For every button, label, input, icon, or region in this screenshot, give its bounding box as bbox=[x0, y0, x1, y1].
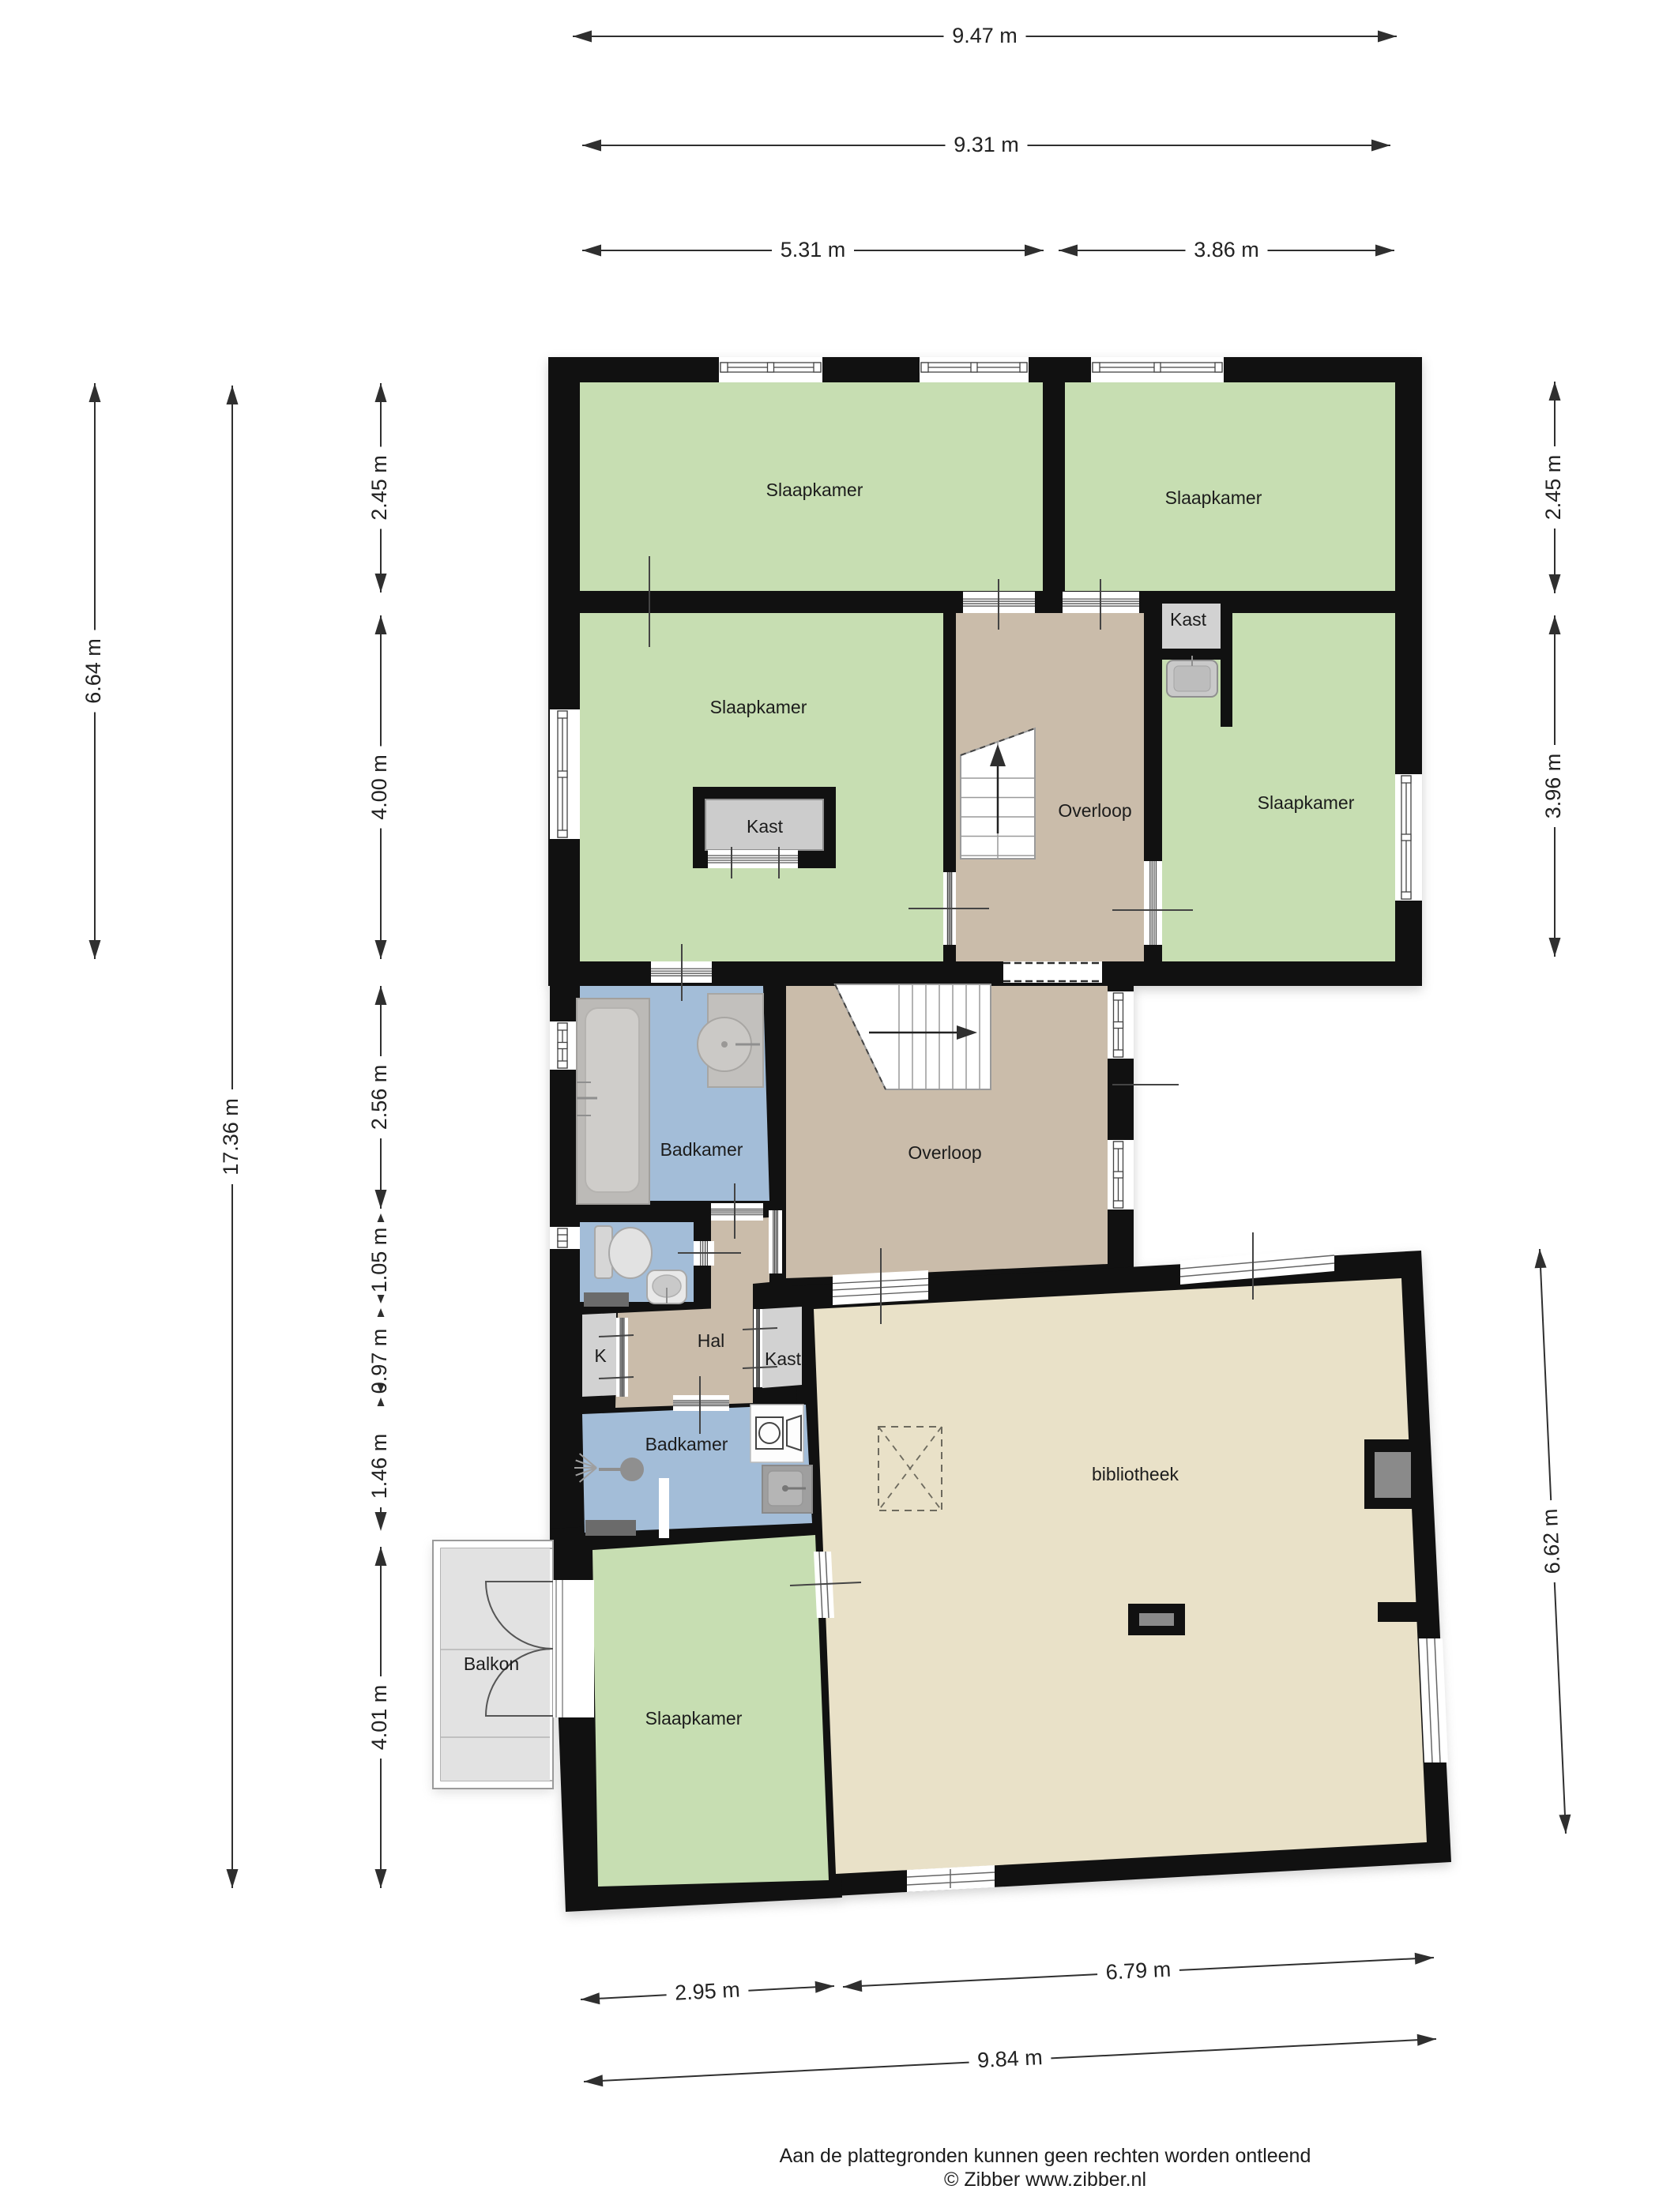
svg-text:Overloop: Overloop bbox=[1058, 800, 1131, 821]
svg-text:9.31 m: 9.31 m bbox=[954, 133, 1019, 156]
svg-text:Badkamer: Badkamer bbox=[645, 1434, 728, 1454]
svg-text:Slaapkamer: Slaapkamer bbox=[766, 480, 863, 500]
svg-text:3.86 m: 3.86 m bbox=[1194, 238, 1259, 261]
svg-text:Hal: Hal bbox=[698, 1330, 725, 1351]
svg-text:Balkon: Balkon bbox=[464, 1653, 519, 1674]
svg-text:4.00 m: 4.00 m bbox=[367, 754, 391, 820]
svg-text:6.62 m: 6.62 m bbox=[1538, 1508, 1565, 1574]
svg-text:Kast: Kast bbox=[1170, 609, 1207, 630]
svg-text:K: K bbox=[594, 1345, 607, 1366]
svg-text:6.64 m: 6.64 m bbox=[81, 638, 105, 704]
svg-text:17.36 m: 17.36 m bbox=[219, 1098, 243, 1176]
svg-text:Slaapkamer: Slaapkamer bbox=[1165, 487, 1262, 508]
svg-text:Kast: Kast bbox=[747, 816, 784, 837]
svg-text:Badkamer: Badkamer bbox=[660, 1139, 743, 1160]
svg-text:Aan de plattegronden kunnen ge: Aan de plattegronden kunnen geen rechten… bbox=[780, 2145, 1311, 2167]
svg-text:9.84 m: 9.84 m bbox=[976, 2045, 1043, 2072]
svg-text:6.79 m: 6.79 m bbox=[1105, 1958, 1172, 1984]
svg-text:© Zibber www.zibber.nl: © Zibber www.zibber.nl bbox=[944, 2169, 1146, 2191]
svg-text:Slaapkamer: Slaapkamer bbox=[1258, 792, 1355, 813]
svg-text:4.01 m: 4.01 m bbox=[367, 1685, 391, 1751]
svg-text:1.46 m: 1.46 m bbox=[367, 1434, 391, 1499]
svg-text:3.96 m: 3.96 m bbox=[1541, 754, 1565, 819]
svg-text:5.31 m: 5.31 m bbox=[781, 238, 846, 261]
svg-text:2.45 m: 2.45 m bbox=[1541, 455, 1565, 521]
svg-text:Slaapkamer: Slaapkamer bbox=[710, 697, 807, 717]
svg-text:bibliotheek: bibliotheek bbox=[1092, 1464, 1179, 1484]
svg-text:Kast: Kast bbox=[765, 1349, 802, 1369]
svg-text:1.05 m: 1.05 m bbox=[367, 1228, 391, 1293]
svg-text:Overloop: Overloop bbox=[908, 1142, 981, 1163]
svg-text:2.95 m: 2.95 m bbox=[674, 1977, 740, 2004]
svg-text:9.47 m: 9.47 m bbox=[952, 24, 1018, 47]
svg-text:0.97 m: 0.97 m bbox=[367, 1329, 391, 1394]
svg-text:Slaapkamer: Slaapkamer bbox=[645, 1708, 743, 1729]
svg-text:2.45 m: 2.45 m bbox=[367, 455, 391, 521]
svg-text:2.56 m: 2.56 m bbox=[367, 1065, 391, 1130]
